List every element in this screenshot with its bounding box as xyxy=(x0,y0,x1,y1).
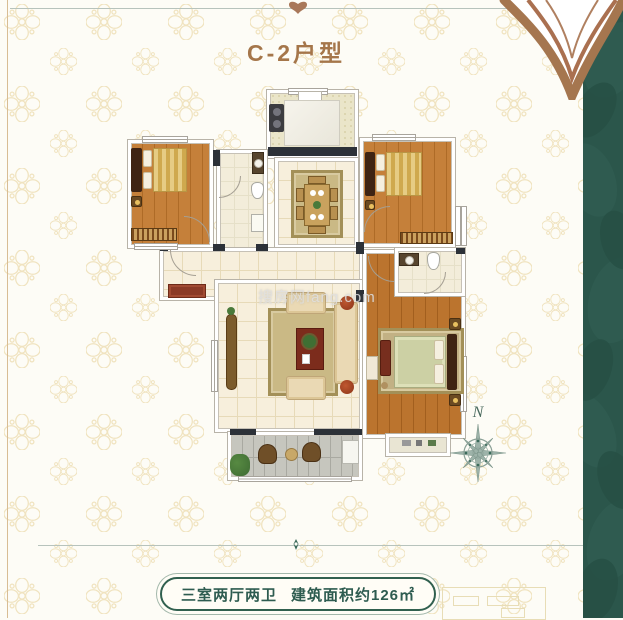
divider-center-ornament-icon xyxy=(289,538,303,552)
wall-segment xyxy=(230,429,256,435)
washing-machine xyxy=(251,214,264,232)
utility-item xyxy=(416,440,422,446)
stove-burner xyxy=(273,120,281,128)
wall-segment xyxy=(314,429,362,435)
pillow xyxy=(143,150,152,167)
stove-burner xyxy=(273,108,281,116)
area-label-box: 三室两厅两卫 建筑面积约126㎡ xyxy=(160,577,436,611)
kitchen-island-counter xyxy=(284,100,340,146)
bed xyxy=(386,152,422,196)
plate xyxy=(310,214,316,220)
wall-segment xyxy=(456,248,465,254)
window xyxy=(211,340,218,392)
bed-headboard xyxy=(365,152,375,196)
window xyxy=(372,134,416,141)
plate xyxy=(318,214,324,220)
wall-segment xyxy=(256,244,268,251)
watermark: 搜房网fang.com xyxy=(258,286,376,307)
utility-item xyxy=(402,440,411,446)
balcony-chair xyxy=(258,444,277,464)
flower-pot xyxy=(340,380,354,394)
bathroom-sink xyxy=(399,253,419,266)
dining-chair xyxy=(296,188,304,202)
dining-chair xyxy=(296,206,304,220)
kitchen-counter-granite xyxy=(268,147,357,156)
pillow xyxy=(143,172,152,189)
plant xyxy=(227,307,235,315)
nightstand xyxy=(131,196,142,207)
balcony-chair xyxy=(302,442,321,462)
window xyxy=(134,243,178,250)
table-centerpiece xyxy=(313,201,321,209)
wall-segment xyxy=(356,242,364,254)
wardrobe xyxy=(131,228,177,241)
bed xyxy=(153,148,187,192)
bed-headboard xyxy=(447,334,457,390)
bay-window xyxy=(455,206,467,246)
plant xyxy=(303,335,316,348)
left-border-line xyxy=(7,0,8,618)
sofa xyxy=(334,302,358,384)
dining-chair xyxy=(330,206,338,220)
table-item xyxy=(302,354,310,364)
bed-bench xyxy=(380,340,391,376)
pillow xyxy=(434,364,444,384)
window xyxy=(238,476,352,482)
plate xyxy=(318,190,324,196)
page-title: C-2户型 xyxy=(146,34,446,68)
background-building-outline xyxy=(442,587,546,620)
compass-north-label: N xyxy=(448,404,508,422)
armchair xyxy=(286,376,326,400)
top-center-ornament-icon xyxy=(287,0,309,15)
balcony-plant xyxy=(230,454,250,476)
bottom-divider-line xyxy=(38,545,583,546)
tv-cabinet xyxy=(226,314,237,390)
wall-segment xyxy=(213,244,225,251)
nightstand xyxy=(449,318,461,330)
dining-chair xyxy=(330,188,338,202)
spec-label: 三室两厅两卫 xyxy=(181,584,277,605)
utility-item xyxy=(428,440,436,446)
dresser-stool xyxy=(381,382,388,389)
bathroom-sink xyxy=(252,152,264,174)
bed-headboard xyxy=(131,148,142,192)
doormat xyxy=(168,284,206,298)
balcony-table xyxy=(285,448,298,461)
wall-segment xyxy=(213,150,220,166)
pillow xyxy=(434,340,444,360)
dining-chair xyxy=(308,226,326,234)
wardrobe xyxy=(400,232,453,244)
washing-machine xyxy=(342,440,359,464)
dining-chair xyxy=(308,176,326,184)
compass-rose-icon xyxy=(448,422,508,486)
window xyxy=(142,136,188,143)
pillow xyxy=(376,175,385,192)
area-label: 建筑面积约126㎡ xyxy=(291,584,415,605)
corner-lotus-ornament-icon xyxy=(498,0,623,100)
dresser xyxy=(366,356,378,380)
plate xyxy=(310,190,316,196)
pillow xyxy=(376,154,385,171)
nightstand xyxy=(365,200,375,210)
